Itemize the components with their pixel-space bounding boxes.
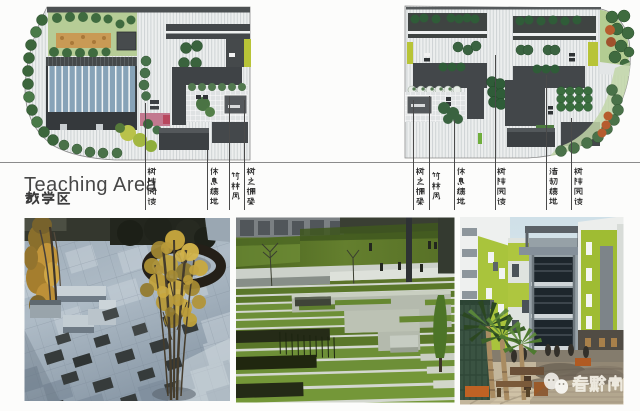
svg-text:Teaching Area: Teaching Area [24,174,158,196]
